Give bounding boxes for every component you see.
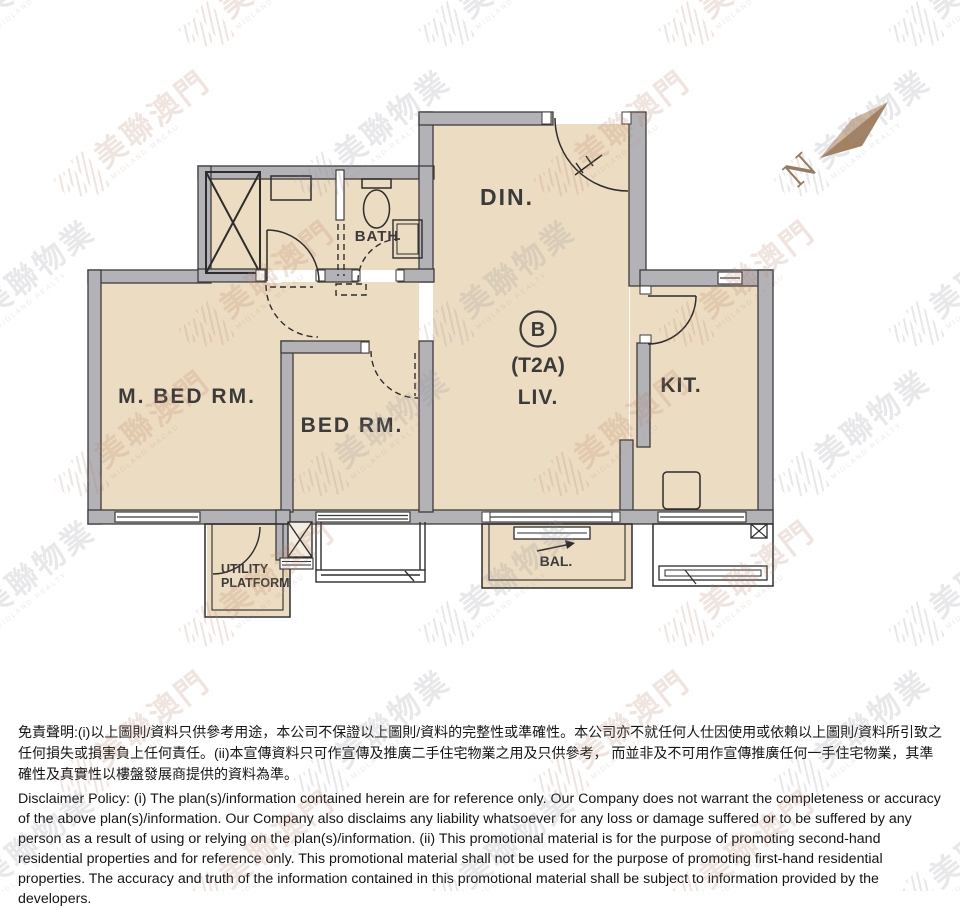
label-utility-line1: UTILITY: [221, 562, 269, 576]
dining-living-floor: [433, 124, 629, 512]
window-kitchen-bottom: [658, 512, 746, 522]
window-kitchen-top: [718, 272, 742, 284]
label-balcony: BAL.: [540, 553, 573, 569]
ac-platform: [653, 524, 773, 586]
compass-n-label: N: [776, 146, 825, 196]
label-dining: DIN.: [480, 184, 534, 210]
disclaimer-english: Disclaimer Policy: (i) The plan(s)/infor…: [18, 789, 946, 909]
label-bath: BATH: [355, 228, 400, 245]
label-master-bedroom: M. BED RM.: [118, 385, 256, 408]
bay-window: [316, 522, 425, 582]
disclaimer: 免責聲明:(i)以上圖則/資料只供參考用途，本公司不保證以上圖則/資料的完整性或…: [18, 722, 946, 909]
bath-partition: [336, 170, 344, 220]
compass: N: [776, 102, 888, 196]
bedroom-floor: [293, 282, 419, 512]
window-master-bedroom: [115, 512, 200, 522]
balcony-sliding-door: [486, 512, 614, 522]
floor-plan-page: DIN. BATH M. BED RM. BED RM. B (T2A) LIV…: [0, 0, 960, 891]
label-living: LIV.: [518, 386, 559, 409]
label-unit-type: (T2A): [511, 354, 565, 377]
label-utility-line2: PLATFORM: [221, 576, 290, 590]
label-bedroom: BED RM.: [301, 414, 404, 437]
disclaimer-chinese: 免責聲明:(i)以上圖則/資料只供參考用途，本公司不保證以上圖則/資料的完整性或…: [18, 722, 946, 785]
window-bedroom: [316, 512, 410, 522]
label-unit: B: [531, 319, 545, 341]
foyer-bath-floor: [211, 179, 421, 270]
label-kitchen: KIT.: [660, 374, 701, 397]
